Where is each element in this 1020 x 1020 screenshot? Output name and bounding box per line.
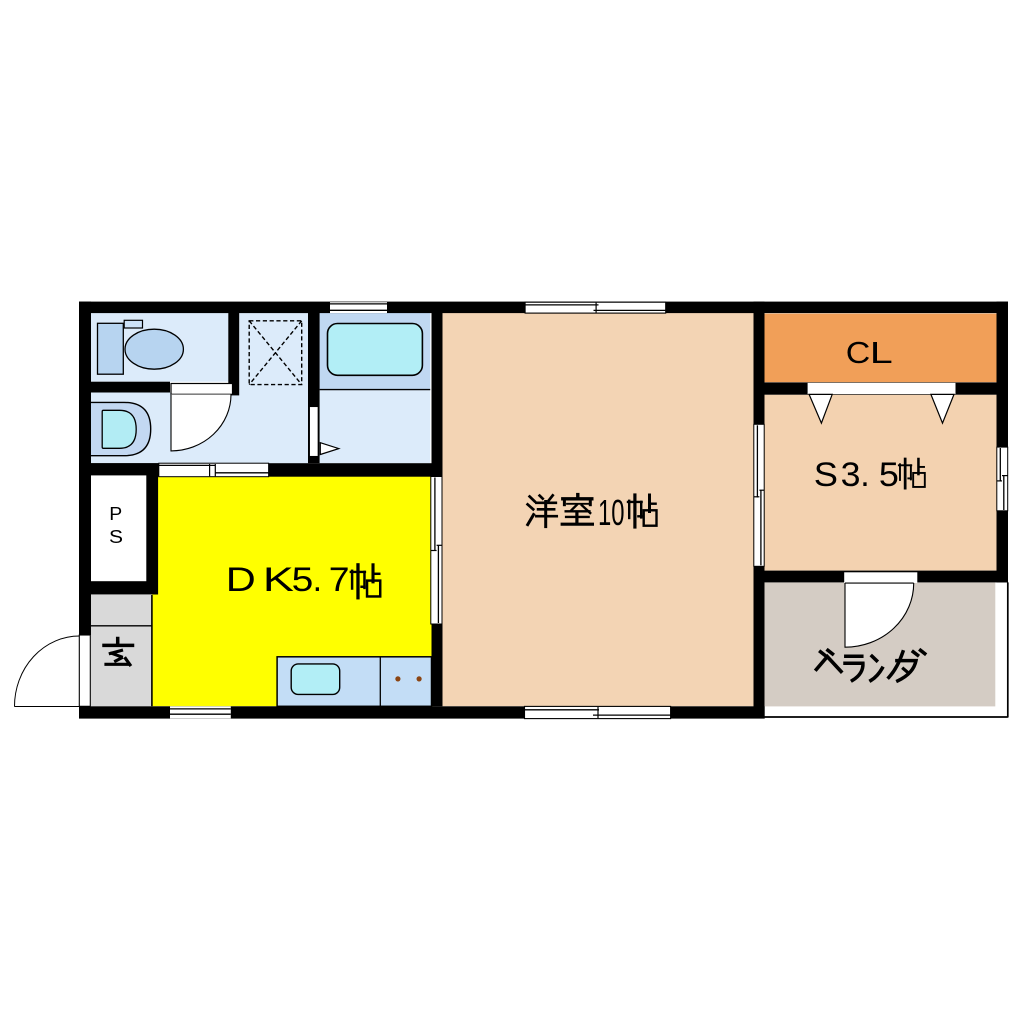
svg-text:S: S: [814, 456, 838, 494]
svg-text:5: 5: [879, 456, 899, 494]
svg-text:7: 7: [329, 561, 350, 599]
svg-text:.: .: [313, 561, 322, 599]
svg-text:K: K: [263, 561, 295, 599]
svg-text:5: 5: [292, 561, 314, 599]
svg-text:S: S: [109, 527, 123, 547]
svg-text:L: L: [870, 335, 893, 370]
svg-text:P: P: [109, 504, 122, 524]
svg-text:3: 3: [841, 456, 861, 494]
svg-text:10: 10: [598, 492, 625, 533]
svg-text:C: C: [846, 335, 871, 370]
svg-text:.: .: [860, 456, 869, 494]
svg-text:D: D: [226, 561, 256, 599]
